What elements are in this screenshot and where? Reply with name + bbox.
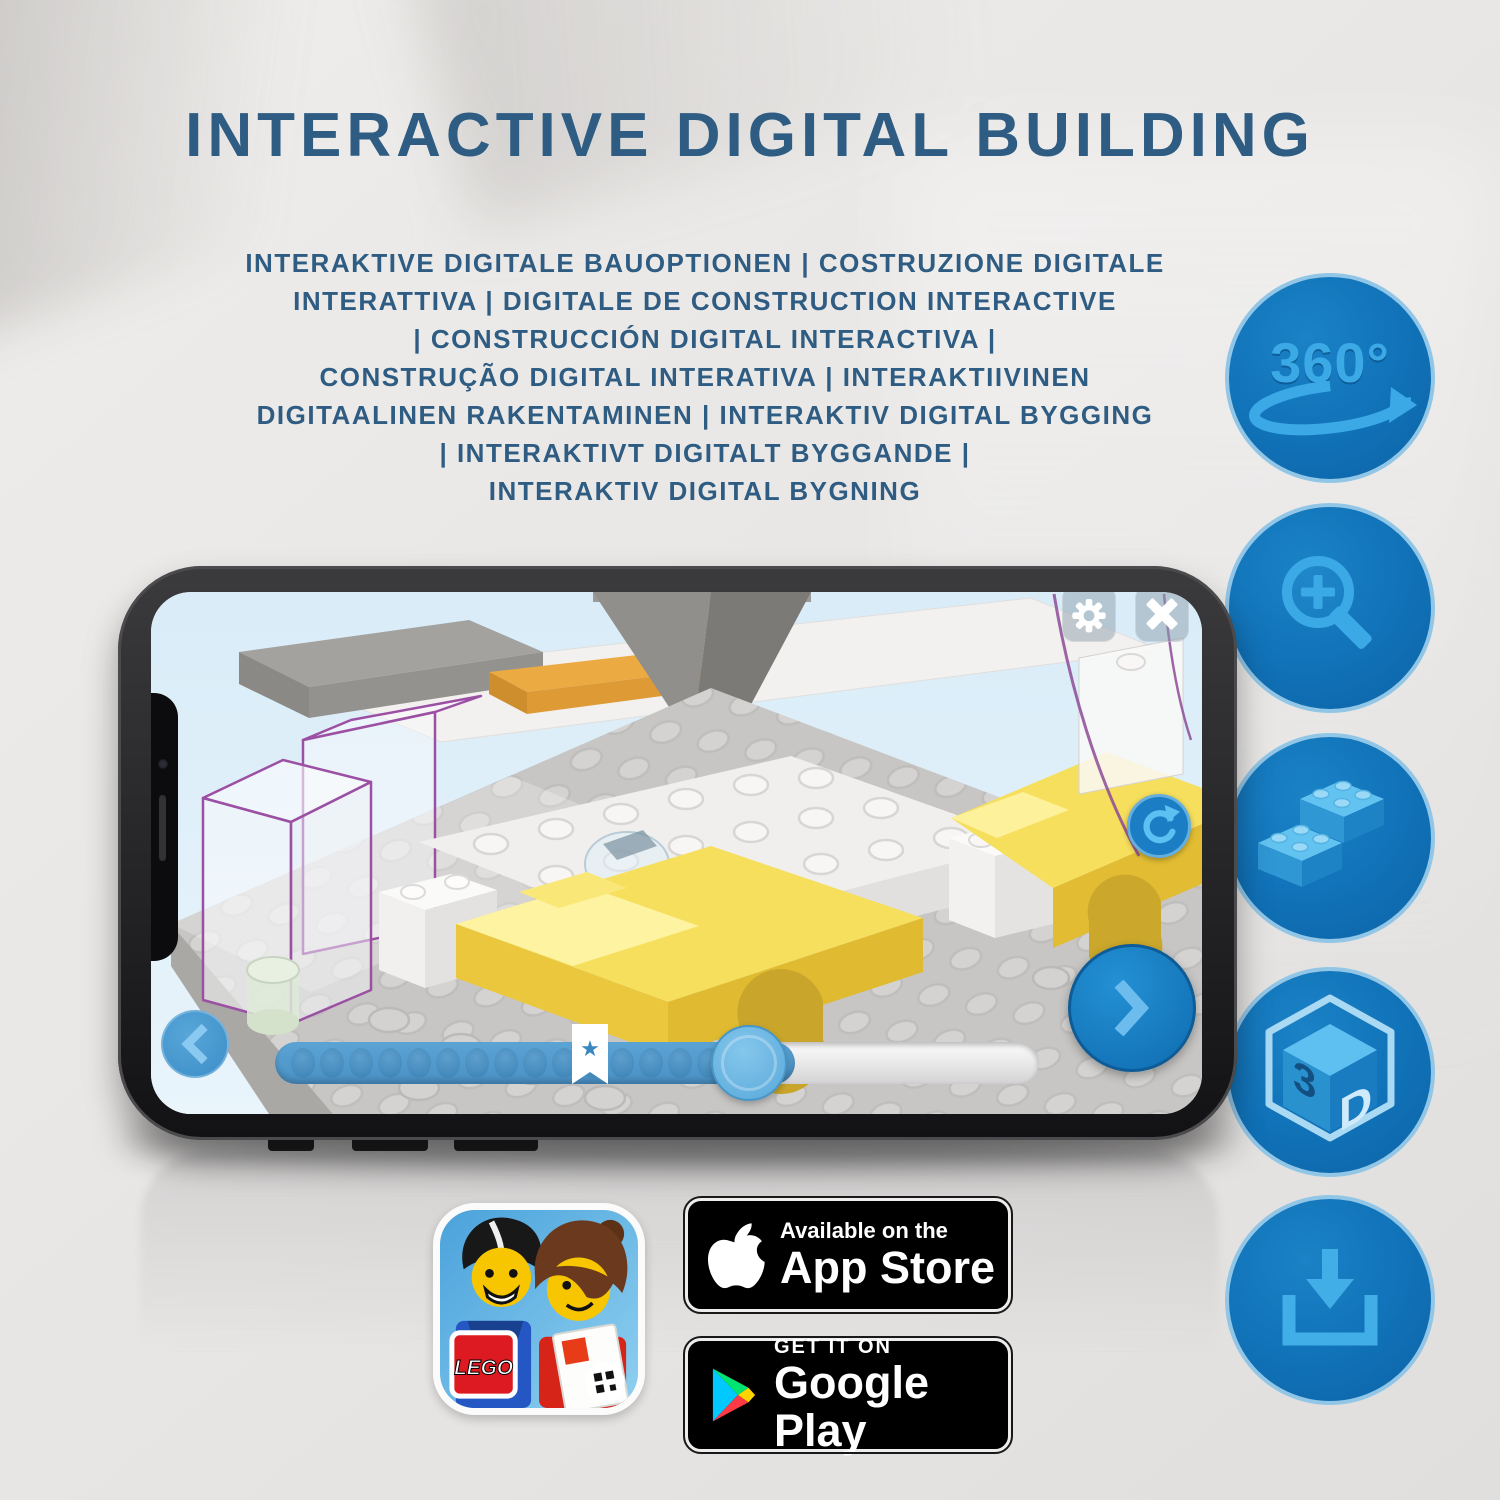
phone-reflection bbox=[140, 1150, 1218, 1390]
chevron-right-icon bbox=[1110, 980, 1154, 1036]
google-play-name: Google Play bbox=[774, 1359, 1008, 1455]
subtitle-line: INTERATTIVA | DIGITALE DE CONSTRUCTION I… bbox=[75, 282, 1335, 320]
zoom-in-icon bbox=[1264, 542, 1396, 674]
app-store-badge[interactable]: Available on the App Store bbox=[685, 1198, 1011, 1312]
smartphone-mockup: ★ bbox=[118, 566, 1237, 1140]
gear-icon bbox=[1069, 594, 1109, 634]
app-store-name: App Store bbox=[780, 1244, 995, 1292]
google-play-badge[interactable]: GET IT ON Google Play bbox=[685, 1338, 1011, 1452]
app-store-tagline: Available on the bbox=[780, 1218, 995, 1244]
3d-cube-icon: 3 D bbox=[1255, 992, 1405, 1152]
lego-minifigures-artwork: LEGO bbox=[440, 1210, 638, 1408]
slider-handle[interactable] bbox=[711, 1025, 787, 1101]
front-camera bbox=[158, 759, 168, 769]
close-icon bbox=[1143, 595, 1181, 633]
google-play-tagline: GET IT ON bbox=[774, 1335, 1008, 1359]
chevron-left-icon bbox=[178, 1022, 212, 1066]
google-play-logo-icon bbox=[708, 1366, 760, 1424]
subtitle-line: CONSTRUÇÃO DIGITAL INTERATIVA | INTERAKT… bbox=[75, 358, 1335, 396]
rotate-view-button[interactable] bbox=[1127, 794, 1191, 858]
subtitle-line: | CONSTRUCCIÓN DIGITAL INTERACTIVA | bbox=[75, 320, 1335, 358]
phone-notch bbox=[151, 693, 178, 961]
progress-dot bbox=[320, 1048, 344, 1078]
brick-stack-icon bbox=[1250, 773, 1410, 903]
subtitle-line: INTERAKTIV DIGITAL BYGNING bbox=[75, 472, 1335, 510]
progress-dot bbox=[465, 1048, 489, 1078]
progress-dot bbox=[494, 1048, 518, 1078]
feature-download bbox=[1225, 1195, 1435, 1405]
phone-screen: ★ bbox=[151, 592, 1202, 1114]
feature-360-rotation: 360° bbox=[1225, 273, 1435, 483]
lego-life-app-icon[interactable]: LEGO bbox=[433, 1203, 645, 1415]
feature-zoom bbox=[1225, 503, 1435, 713]
progress-dot bbox=[436, 1048, 460, 1078]
settings-button[interactable] bbox=[1062, 592, 1116, 642]
subtitle-line: INTERAKTIVE DIGITALE BAUOPTIONEN | COSTR… bbox=[75, 244, 1335, 282]
previous-step-button[interactable] bbox=[161, 1010, 229, 1078]
subtitle-line: | INTERAKTIVT DIGITALT BYGGANDE | bbox=[75, 434, 1335, 472]
subtitle-line: DIGITAALINEN RAKENTAMINEN | INTERAKTIV D… bbox=[75, 396, 1335, 434]
progress-dot bbox=[291, 1048, 315, 1078]
progress-dot bbox=[523, 1048, 547, 1078]
earpiece-speaker bbox=[159, 795, 166, 861]
download-icon bbox=[1265, 1235, 1395, 1365]
lego-3d-viewport[interactable] bbox=[151, 592, 1202, 1114]
progress-dot bbox=[668, 1048, 692, 1078]
progress-dot bbox=[349, 1048, 373, 1078]
page-title: INTERACTIVE DIGITAL BUILDING bbox=[0, 100, 1500, 171]
rotation-arrow-icon bbox=[1241, 381, 1419, 441]
multilanguage-subtitle: INTERAKTIVE DIGITALE BAUOPTIONEN | COSTR… bbox=[75, 244, 1335, 510]
feature-3d-view: 3 D bbox=[1225, 967, 1435, 1177]
close-button[interactable] bbox=[1135, 592, 1189, 642]
lego-logo: LEGO bbox=[454, 1356, 513, 1379]
rotate-cw-icon bbox=[1136, 803, 1182, 849]
next-step-button[interactable] bbox=[1068, 944, 1196, 1072]
progress-dot bbox=[639, 1048, 663, 1078]
progress-dot bbox=[378, 1048, 402, 1078]
feature-brick-options bbox=[1225, 733, 1435, 943]
progress-dot bbox=[407, 1048, 431, 1078]
progress-dot bbox=[610, 1048, 634, 1078]
build-progress-slider[interactable] bbox=[275, 1042, 1039, 1084]
marketing-page: INTERACTIVE DIGITAL BUILDING INTERAKTIVE… bbox=[0, 0, 1500, 1500]
apple-logo-icon bbox=[708, 1219, 766, 1291]
